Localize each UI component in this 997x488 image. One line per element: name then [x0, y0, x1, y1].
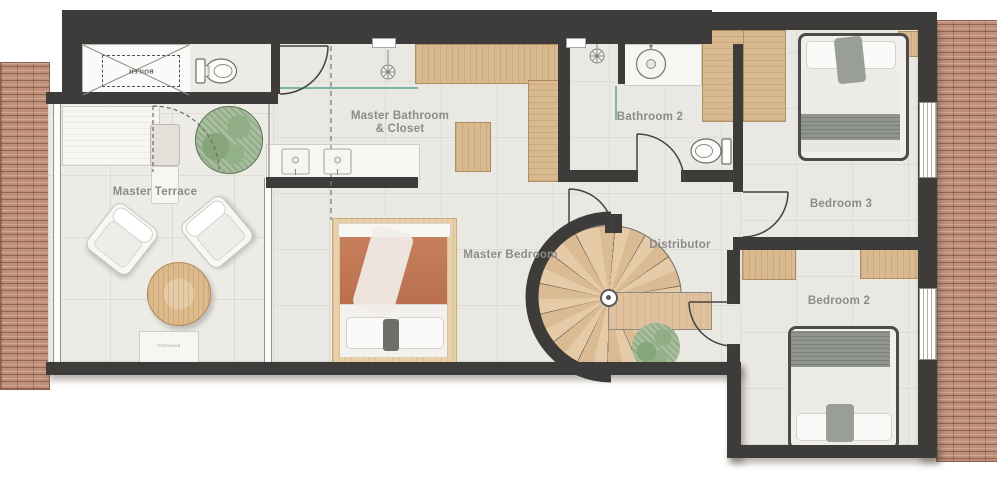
wall-bottom-main — [46, 362, 740, 375]
closet-top — [415, 44, 567, 84]
bed2-throw — [826, 404, 854, 442]
terrace-planter-counter — [62, 106, 160, 166]
shower-glass-master — [278, 87, 418, 89]
fireplace-label: Chimenea — [140, 343, 198, 348]
room-label-master-bathroom: Master Bathroom & Closet — [330, 110, 470, 135]
wall-vanity-back — [266, 177, 418, 188]
pole-dot — [606, 295, 611, 300]
wall-left-upper — [62, 10, 82, 96]
wall-right-outer — [918, 24, 937, 458]
wall-bedroom3-left — [733, 44, 743, 192]
room-label-distributor: Distributor — [638, 239, 722, 252]
wall-step-vertical — [727, 362, 741, 458]
wall-distributor-bedroom2-upper — [727, 250, 740, 304]
window-bedroom3 — [919, 102, 937, 178]
wall-masterbath-bathroom2 — [558, 44, 570, 182]
bed2-pillow-right — [848, 413, 892, 441]
dressing-bench-cushion — [150, 124, 180, 166]
wall-bottom-bedroom2 — [727, 445, 937, 458]
master-bed-pillow-right — [397, 317, 444, 349]
master-bed-folded-item — [383, 319, 399, 351]
glass-wall-terrace-left — [53, 104, 61, 362]
wall-below-boiler — [46, 92, 278, 104]
roof-tiles-left — [0, 62, 50, 390]
room-label-bedroom2: Bedroom 2 — [795, 295, 883, 308]
wall-bedrooms-divider — [733, 237, 918, 250]
wall-bathroom2-bottom-left — [558, 170, 638, 182]
vent-top-2 — [566, 38, 586, 48]
roof-tiles-right — [936, 20, 997, 462]
room-label-bathroom2: Bathroom 2 — [608, 111, 692, 124]
bed3-throw — [834, 36, 867, 85]
room-label-master-bathroom-line1: Master Bathroom — [330, 110, 470, 123]
wall-distributor-bedroom2-lower — [727, 344, 740, 366]
window-bedroom2 — [919, 288, 937, 360]
vanity-counter — [266, 144, 420, 180]
bed3-foot-sheet — [801, 140, 900, 152]
desk-bedroom2-right — [860, 246, 920, 279]
wall-wc-right — [271, 44, 280, 94]
partition-line-plant — [268, 102, 270, 178]
floor-wc-room — [190, 44, 273, 96]
bed2-blanket — [791, 331, 890, 369]
basin-counter-bathroom2 — [624, 44, 702, 86]
wall-stair-stub — [605, 214, 622, 233]
glass-wall-terrace-right — [264, 178, 272, 362]
fireplace-box: Chimenea — [139, 331, 199, 363]
boiler-label: BOILER — [102, 64, 180, 77]
wardrobe-bedroom3 — [743, 30, 786, 122]
wall-shower-stub — [618, 44, 625, 84]
room-label-master-terrace: Master Terrace — [90, 186, 220, 199]
staircase-center-pole — [600, 289, 618, 307]
room-label-bedroom3: Bedroom 3 — [797, 198, 885, 211]
bed3-blanket — [801, 114, 900, 142]
floorplan-canvas: BOILER Chimenea — [0, 0, 997, 488]
vent-top-1 — [372, 38, 396, 48]
room-label-master-bathroom-line2: & Closet — [330, 123, 470, 136]
room-label-master-bedroom: Master Bedroom — [448, 249, 573, 262]
potted-plant-master — [195, 106, 263, 174]
wall-top-bedrooms — [706, 12, 937, 30]
round-coffee-table — [147, 262, 211, 326]
desk-bedroom2-left — [742, 249, 796, 280]
